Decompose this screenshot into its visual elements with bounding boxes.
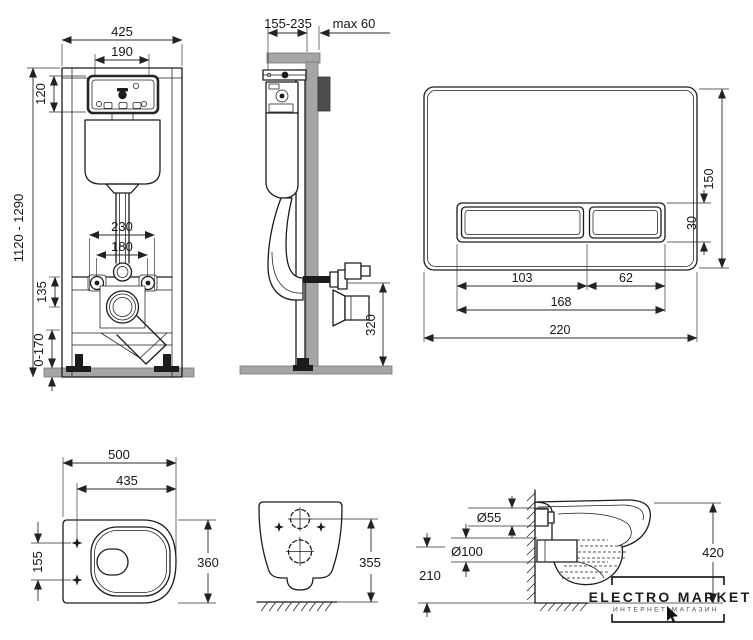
dim-fixing-width-inner: 180 bbox=[111, 239, 133, 254]
frame-side-view: 155-235 max 60 320 bbox=[240, 16, 392, 374]
dim-frame-depth-range: 155-235 bbox=[264, 16, 312, 31]
dim-outlet-axis-height: 210 bbox=[419, 568, 441, 583]
dim-frame-height-range: 1120 - 1290 bbox=[11, 194, 26, 262]
outlet-connector bbox=[537, 540, 577, 562]
dim-wall-max-thickness: max 60 bbox=[333, 16, 376, 31]
bowl-top-view: 500 435 155 360 bbox=[30, 447, 219, 603]
frame-front-view: 425 190 120 1120 - 1290 230 180 135 bbox=[11, 24, 194, 391]
dim-frame-total-width: 425 bbox=[111, 24, 133, 39]
dim-outlet-height: 320 bbox=[363, 314, 378, 336]
dim-button-height: 30 bbox=[685, 216, 699, 230]
dim-inlet-diameter: Ø55 bbox=[477, 510, 502, 525]
fixing-rail-and-outlet bbox=[72, 263, 172, 364]
dim-buttons-total-width: 168 bbox=[551, 295, 572, 309]
dim-hole-spacing: 155 bbox=[30, 551, 45, 573]
dim-bowl-inner-length: 435 bbox=[116, 473, 138, 488]
dim-plate-width: 220 bbox=[550, 323, 571, 337]
floor-strip bbox=[240, 366, 392, 374]
drawing-canvas: 425 190 120 1120 - 1290 230 180 135 bbox=[0, 0, 753, 640]
wall-top bbox=[267, 53, 320, 63]
dim-bowl-length: 500 bbox=[108, 447, 130, 462]
wall-bracket bbox=[318, 77, 330, 111]
dim-outlet-diameter: Ø100 bbox=[451, 544, 483, 559]
logo-subtitle: ИНТЕРНЕТ-МАГАЗИН bbox=[613, 607, 719, 614]
bowl-back-view: 355 bbox=[257, 502, 381, 611]
ground-hatching bbox=[257, 602, 337, 611]
dim-small-button-width: 62 bbox=[619, 271, 633, 285]
dim-fixing-width-outer: 230 bbox=[111, 219, 133, 234]
cistern-access-panel bbox=[88, 76, 158, 113]
finished-wall bbox=[306, 62, 318, 374]
wall-hatching bbox=[527, 490, 535, 603]
inlet-pipe bbox=[535, 509, 548, 526]
brand-logo: ELECTRO MARKET ИНТЕРНЕТ-МАГАЗИН bbox=[589, 577, 752, 623]
bowl-back-outline bbox=[259, 502, 342, 590]
dim-panel-height: 120 bbox=[33, 83, 48, 105]
dim-large-button-width: 103 bbox=[512, 271, 533, 285]
floor-hatching bbox=[535, 603, 588, 611]
logo-title: ELECTRO MARKET bbox=[589, 589, 752, 605]
technical-drawing-sheet: 425 190 120 1120 - 1290 230 180 135 bbox=[0, 0, 753, 640]
dim-outlet-drop: 135 bbox=[34, 281, 49, 303]
dim-frame-inner-width: 190 bbox=[111, 44, 133, 59]
flush-plate-view: 150 30 103 62 168 220 bbox=[424, 87, 729, 342]
dim-plate-height: 150 bbox=[702, 169, 716, 190]
dim-bowl-height: 420 bbox=[702, 545, 724, 560]
dim-hole-height: 355 bbox=[359, 555, 381, 570]
dim-foot-range: 0-170 bbox=[31, 333, 46, 366]
dim-bowl-width: 360 bbox=[197, 555, 219, 570]
logo-frame-top bbox=[612, 577, 724, 585]
